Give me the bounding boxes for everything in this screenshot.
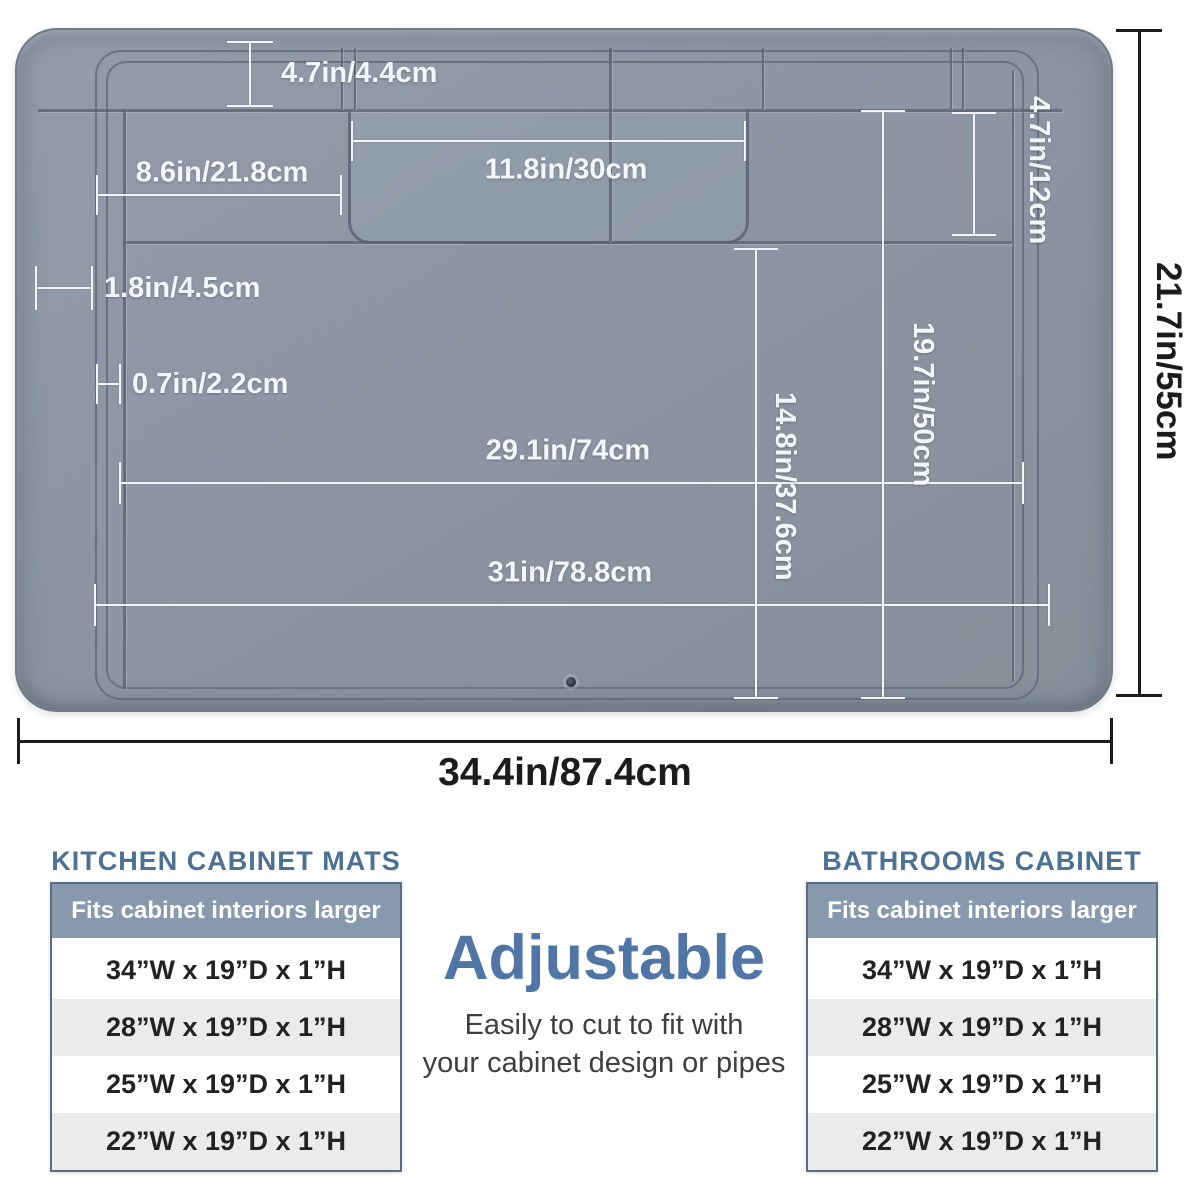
dim-label: 14.8in/37.6cm [768,392,801,581]
mat-top-strip-divider-3 [762,48,764,109]
mat-drain-hole [566,677,576,687]
dim-label: 19.7in/50cm [906,322,939,486]
dim-label: 0.7in/2.2cm [132,368,288,401]
bathroom-spec-table: Fits cabinet interiors larger than 34”W … [806,882,1158,1172]
table-row: 34”W x 19”D x 1”H [52,942,400,999]
table-header: Fits cabinet interiors larger than [52,884,400,942]
subtext-line-2: your cabinet design or pipes [394,1044,814,1082]
dim-label: 11.8in/30cm [485,154,648,187]
dim-label: 8.6in/21.8cm [136,157,309,190]
mat-rim-line-right [1012,70,1014,682]
kitchen-spec-table: Fits cabinet interiors larger than 34”W … [50,882,402,1172]
subtext-line-1: Easily to cut to fit with [394,1006,814,1044]
product-infographic: 4.7in/4.4cm 8.6in/21.8cm 11.8in/30cm 4.7… [0,0,1200,1200]
mat-ridge-left-column [123,109,126,689]
dim-label: 21.7in/55cm [1148,262,1188,460]
table-row: 22”W x 19”D x 1”H [808,1113,1156,1170]
table-row: 25”W x 19”D x 1”H [808,1056,1156,1113]
mat-top-strip-divider-5 [962,48,964,109]
table-row: 28”W x 19”D x 1”H [52,999,400,1056]
dim-label: 1.8in/4.5cm [104,272,260,305]
table-header: Fits cabinet interiors larger than [808,884,1156,942]
kitchen-table-title: KITCHEN CABINET MATS [40,846,412,877]
dim-label: 31in/78.8cm [488,557,652,590]
table-row: 34”W x 19”D x 1”H [808,942,1156,999]
table-row: 28”W x 19”D x 1”H [808,999,1156,1056]
dim-label: 4.7in/12cm [1022,96,1055,244]
adjustable-headline: Adjustable [443,922,765,994]
mat-top-strip-divider-4 [950,48,952,109]
table-row: 22”W x 19”D x 1”H [52,1113,400,1170]
dim-label: 34.4in/87.4cm [438,751,692,795]
table-row: 25”W x 19”D x 1”H [52,1056,400,1113]
dim-label: 29.1in/74cm [486,435,650,468]
adjustable-subtext: Easily to cut to fit with your cabinet d… [394,1006,814,1082]
dim-label: 4.7in/4.4cm [281,57,437,90]
mat-tray-divider [609,48,612,241]
